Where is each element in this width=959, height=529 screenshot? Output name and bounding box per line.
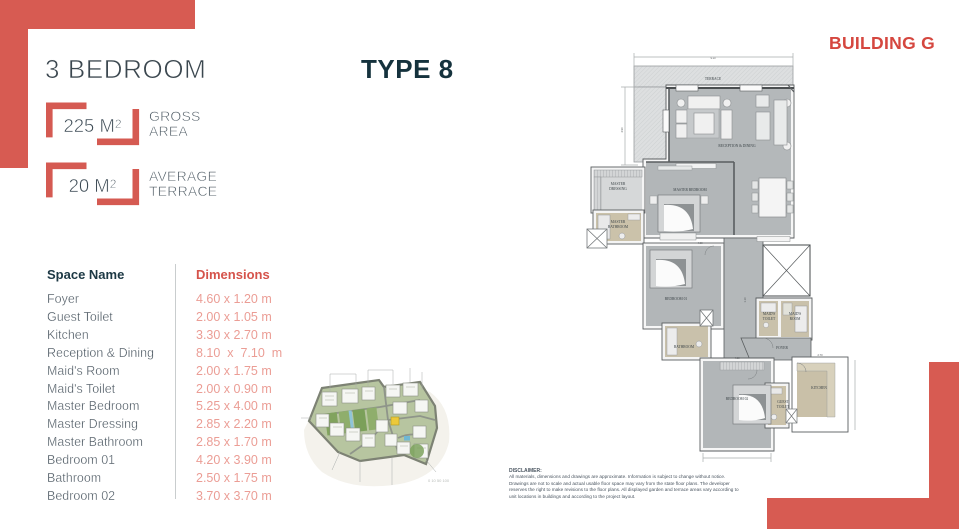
svg-text:GUEST: GUEST <box>777 400 789 404</box>
svg-text:RECEPTION & DINING: RECEPTION & DINING <box>718 144 756 148</box>
svg-text:BATHROOM: BATHROOM <box>674 345 695 349</box>
svg-text:2.70: 2.70 <box>817 353 823 357</box>
svg-text:DRESSING: DRESSING <box>609 187 627 191</box>
svg-text:FOYER: FOYER <box>776 346 788 350</box>
svg-text:KITCHEN: KITCHEN <box>811 386 827 390</box>
svg-text:TERRACE: TERRACE <box>705 77 722 81</box>
svg-text:1.10: 1.10 <box>743 297 747 303</box>
svg-text:BEDROOM 02: BEDROOM 02 <box>726 397 749 401</box>
svg-text:ROOM: ROOM <box>790 317 802 321</box>
svg-text:MAID'S: MAID'S <box>763 312 775 316</box>
svg-text:0 10 50 100: 0 10 50 100 <box>428 478 450 483</box>
svg-text:TOILET: TOILET <box>777 405 790 409</box>
svg-text:4.90: 4.90 <box>620 127 624 133</box>
svg-text:MASTER: MASTER <box>611 220 626 224</box>
svg-text:MASTER BEDROOM: MASTER BEDROOM <box>673 188 707 192</box>
svg-text:4.00: 4.00 <box>734 356 740 360</box>
svg-text:TOILET: TOILET <box>763 317 776 321</box>
svg-text:MASTER: MASTER <box>611 182 626 186</box>
svg-text:BEDROOM 01: BEDROOM 01 <box>665 297 688 301</box>
svg-text:BATHROOM: BATHROOM <box>608 225 629 229</box>
svg-text:4.60: 4.60 <box>697 241 703 245</box>
svg-text:9.10: 9.10 <box>710 56 716 60</box>
svg-text:MAID'S: MAID'S <box>789 312 801 316</box>
